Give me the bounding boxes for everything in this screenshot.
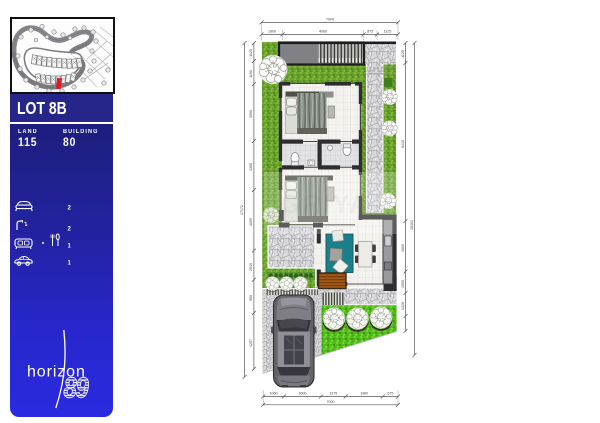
svg-text:4060: 4060 [319, 30, 327, 34]
svg-text:1960: 1960 [360, 392, 368, 396]
svg-text:1375: 1375 [329, 392, 337, 396]
svg-text:GRIYA: GRIYA [280, 189, 370, 219]
svg-text:1365: 1365 [249, 163, 253, 171]
svg-text:1800: 1800 [268, 30, 276, 34]
svg-text:8410: 8410 [401, 140, 405, 148]
svg-text:3000: 3000 [249, 218, 253, 226]
svg-text:1326: 1326 [401, 302, 405, 310]
svg-text:1050: 1050 [401, 280, 405, 288]
svg-text:15401: 15401 [410, 220, 414, 230]
svg-text:17172: 17172 [240, 205, 244, 215]
svg-text:1000: 1000 [270, 392, 278, 396]
svg-text:1125: 1125 [249, 49, 253, 57]
svg-text:2000: 2000 [299, 392, 307, 396]
svg-text:1190: 1190 [249, 70, 253, 78]
svg-text:3000: 3000 [249, 110, 253, 118]
svg-text:7000: 7000 [327, 400, 335, 404]
svg-text:875: 875 [367, 30, 373, 34]
svg-text:950: 950 [249, 295, 253, 301]
svg-text:3000: 3000 [401, 244, 405, 252]
svg-text:1125: 1125 [384, 30, 392, 34]
svg-text:2510: 2510 [249, 263, 253, 271]
svg-text:1125: 1125 [401, 50, 405, 58]
svg-text:7000: 7000 [326, 18, 334, 22]
svg-text:4257: 4257 [249, 339, 253, 347]
svg-text:675: 675 [387, 392, 393, 396]
